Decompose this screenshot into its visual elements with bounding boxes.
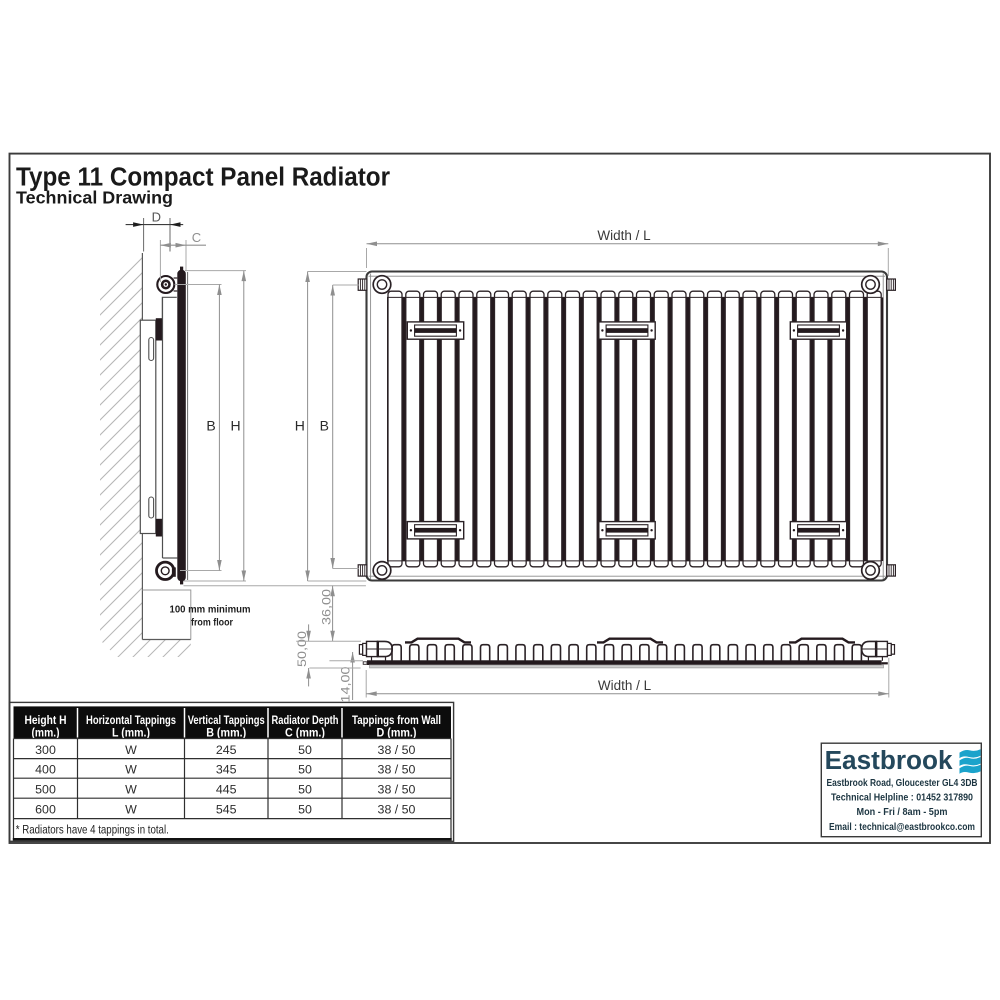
svg-text:W: W	[125, 782, 137, 796]
svg-text:600: 600	[35, 802, 56, 816]
svg-text:B (mm.): B (mm.)	[206, 726, 246, 740]
svg-text:C (mm.): C (mm.)	[285, 726, 325, 740]
svg-text:400: 400	[35, 763, 56, 777]
svg-text:50: 50	[298, 802, 312, 816]
svg-text:(mm.): (mm.)	[32, 726, 60, 740]
svg-text:Mon - Fri / 8am - 5pm: Mon - Fri / 8am - 5pm	[857, 807, 948, 818]
svg-text:Width / L: Width / L	[598, 678, 652, 693]
svg-text:50: 50	[298, 763, 312, 777]
svg-text:345: 345	[216, 763, 237, 777]
svg-text:14,00: 14,00	[339, 666, 353, 702]
svg-text:100 mm minimum: 100 mm minimum	[170, 605, 251, 616]
svg-text:B: B	[206, 418, 215, 434]
svg-text:38 / 50: 38 / 50	[378, 782, 416, 796]
svg-text:Width / L: Width / L	[597, 228, 651, 243]
svg-text:Eastbrook: Eastbrook	[825, 747, 954, 775]
svg-text:38 / 50: 38 / 50	[378, 802, 416, 816]
svg-text:50: 50	[298, 782, 312, 796]
svg-text:W: W	[125, 802, 137, 816]
svg-text:Technical Helpline : 01452 317: Technical Helpline : 01452 317890	[831, 792, 973, 803]
svg-text:Eastbrook Road, Gloucester GL4: Eastbrook Road, Gloucester GL4 3DB	[827, 778, 978, 789]
svg-text:300: 300	[35, 743, 56, 757]
svg-text:H: H	[295, 418, 305, 434]
svg-text:W: W	[125, 763, 137, 777]
svg-text:245: 245	[216, 743, 237, 757]
svg-text:50: 50	[298, 743, 312, 757]
svg-text:L (mm.): L (mm.)	[112, 726, 150, 740]
svg-text:H: H	[231, 418, 241, 434]
svg-text:D (mm.): D (mm.)	[377, 726, 417, 740]
svg-text:38 / 50: 38 / 50	[378, 743, 416, 757]
svg-text:545: 545	[216, 802, 237, 816]
svg-text:50,00: 50,00	[295, 631, 309, 667]
svg-text:* Radiators have 4 tappings in: * Radiators have 4 tappings in total.	[16, 823, 169, 837]
svg-text:500: 500	[35, 782, 56, 796]
svg-text:B: B	[320, 418, 329, 434]
svg-text:D: D	[152, 210, 161, 225]
svg-text:38 / 50: 38 / 50	[378, 763, 416, 777]
svg-text:445: 445	[216, 782, 237, 796]
svg-text:from floor: from floor	[191, 618, 233, 629]
svg-text:Email : technical@eastbrookco.: Email : technical@eastbrookco.com	[829, 822, 975, 833]
svg-text:Technical Drawing: Technical Drawing	[16, 188, 173, 208]
svg-text:C: C	[192, 230, 201, 245]
svg-text:36,00: 36,00	[320, 589, 334, 625]
svg-text:W: W	[125, 743, 137, 757]
